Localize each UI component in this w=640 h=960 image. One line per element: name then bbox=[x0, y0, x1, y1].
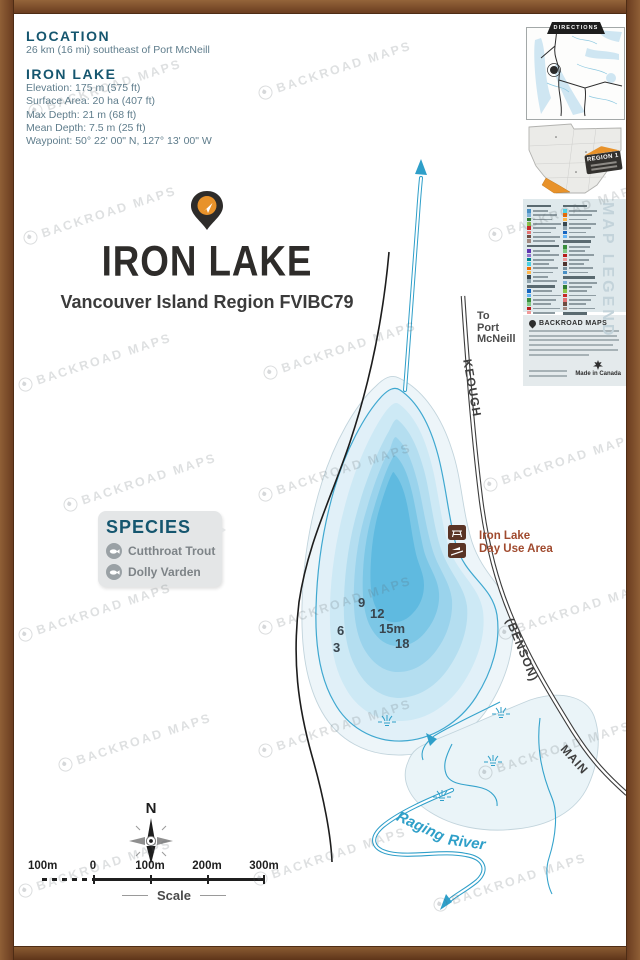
to-port-mcneill-label: To Port McNeill bbox=[477, 311, 516, 346]
day-use-markers bbox=[448, 525, 466, 558]
directions-inset-map bbox=[526, 27, 625, 120]
fine-print-line bbox=[529, 370, 567, 372]
stat-max-depth: Max Depth: 21 m (68 ft) bbox=[26, 109, 212, 122]
legend-text-line bbox=[533, 232, 551, 234]
legend-swatch bbox=[563, 298, 567, 302]
species-item: Cutthroat Trout bbox=[128, 544, 215, 558]
legend-swatch bbox=[563, 258, 567, 262]
to-port-line3: McNeill bbox=[477, 334, 516, 346]
legend-swatch bbox=[527, 298, 531, 302]
legend-col-left bbox=[527, 203, 561, 312]
legend-swatch bbox=[527, 249, 531, 253]
scale-dashed-segment bbox=[42, 878, 93, 881]
caption-dash bbox=[122, 895, 148, 896]
stat-mean-depth: Mean Depth: 7.5 m (25 ft) bbox=[26, 122, 212, 135]
scale-label: 100m bbox=[28, 860, 57, 872]
legend-text-line bbox=[569, 236, 595, 238]
legend-text-line bbox=[569, 290, 587, 292]
legend-text-line bbox=[533, 272, 553, 274]
legend-text-line bbox=[533, 295, 561, 297]
species-row: Cutthroat Trout bbox=[106, 543, 214, 559]
legend-text-line bbox=[569, 263, 584, 265]
legend-row bbox=[563, 235, 597, 239]
legend-swatch bbox=[563, 271, 567, 275]
legend-section-header bbox=[527, 205, 551, 208]
caption-dash bbox=[200, 895, 226, 896]
species-callout: SPECIES Cutthroat Trout Dolly Varden bbox=[98, 511, 222, 587]
scale-caption: Scale bbox=[157, 888, 191, 903]
fine-print-line bbox=[529, 339, 619, 341]
legend-text-line bbox=[533, 267, 558, 269]
copyright-lines bbox=[529, 367, 567, 377]
stat-elevation: Elevation: 175 m (575 ft) bbox=[26, 82, 212, 95]
species-item: Dolly Varden bbox=[128, 565, 201, 579]
made-in-canada: Made in Canada bbox=[575, 360, 621, 377]
legend-text-line bbox=[533, 210, 548, 212]
legend-text-line bbox=[569, 214, 592, 216]
scale-bar: 100m 0 100m 200m 300m Scale bbox=[24, 860, 284, 905]
legend-text-line bbox=[569, 303, 586, 305]
directions-banner: DIRECTIONS bbox=[547, 22, 605, 34]
legend-section-header bbox=[563, 205, 587, 208]
stat-surface-area: Surface Area: 20 ha (407 ft) bbox=[26, 95, 212, 108]
brand-name: BACKROAD MAPS bbox=[539, 320, 607, 327]
legend-text-line bbox=[533, 290, 552, 292]
legend-swatch bbox=[527, 213, 531, 217]
legend-text-line bbox=[533, 259, 554, 261]
legend-text-line bbox=[569, 232, 586, 234]
directions-map-art bbox=[527, 28, 624, 117]
legend-text-line bbox=[569, 272, 588, 274]
species-heading: SPECIES bbox=[106, 517, 214, 538]
brand-pin-icon bbox=[528, 319, 538, 329]
lake-subtitle: Vancouver Island Region FVIBC79 bbox=[57, 292, 357, 313]
legend-swatch bbox=[563, 262, 567, 266]
legend-text-line bbox=[533, 240, 555, 242]
legend-swatch bbox=[527, 226, 531, 230]
legend-swatch bbox=[527, 302, 531, 306]
depth-label-6: 6 bbox=[337, 623, 344, 638]
legend-swatch bbox=[527, 267, 531, 271]
depth-label-9: 9 bbox=[358, 595, 365, 610]
scale-tick bbox=[263, 875, 265, 884]
legend-swatch bbox=[563, 285, 567, 289]
legend-swatch bbox=[527, 235, 531, 239]
scale-tick bbox=[207, 875, 209, 884]
legend-text-line bbox=[533, 236, 560, 238]
legend-text-line bbox=[569, 250, 585, 252]
day-use-line2: Day Use Area bbox=[479, 543, 553, 556]
legend-swatch bbox=[527, 262, 531, 266]
legend-text-line bbox=[569, 254, 594, 256]
lake-heading: IRON LAKE bbox=[26, 66, 212, 82]
legend-swatch bbox=[527, 307, 531, 311]
scale-label: 100m bbox=[135, 860, 164, 872]
scale-caption-row: Scale bbox=[84, 888, 264, 903]
location-heading: LOCATION bbox=[26, 28, 212, 44]
legend-text-line bbox=[533, 299, 556, 301]
scale-solid-segment bbox=[93, 878, 264, 881]
legend-text-line bbox=[533, 263, 549, 265]
legend-text-line bbox=[569, 299, 591, 301]
legend-swatch bbox=[563, 249, 567, 253]
legend-text-line bbox=[533, 214, 557, 216]
legend-text-line bbox=[569, 210, 597, 212]
legend-swatch bbox=[527, 222, 531, 226]
legend-text-line bbox=[569, 259, 589, 261]
legend-swatch bbox=[527, 311, 531, 315]
legend-row bbox=[527, 279, 561, 283]
legend-text-line bbox=[569, 308, 595, 310]
legend-text-line bbox=[569, 295, 596, 297]
compass-rose bbox=[127, 817, 175, 865]
legend-text-line bbox=[569, 267, 593, 269]
legend-swatch bbox=[527, 289, 531, 293]
stat-waypoint: Waypoint: 50° 22' 00" N, 127° 13' 00" W bbox=[26, 135, 212, 148]
picnic-table-icon bbox=[448, 525, 466, 540]
scale-tick bbox=[93, 875, 95, 884]
legend-swatch bbox=[563, 294, 567, 298]
legend-swatch bbox=[527, 254, 531, 258]
day-use-label: Iron Lake Day Use Area bbox=[479, 530, 553, 556]
legend-text-line bbox=[569, 223, 596, 225]
legend-swatch bbox=[527, 218, 531, 222]
location-text: 26 km (16 mi) southeast of Port McNeill bbox=[26, 44, 212, 57]
fine-print-line bbox=[529, 349, 618, 351]
legend-swatch bbox=[563, 218, 567, 222]
legend-swatch bbox=[527, 209, 531, 213]
boat-launch-icon bbox=[448, 543, 466, 558]
depth-label-12: 12 bbox=[370, 606, 384, 621]
scale-label: 0 bbox=[90, 860, 96, 872]
legend-swatch bbox=[563, 222, 567, 226]
legend-section-header bbox=[527, 245, 559, 248]
legend-swatch bbox=[563, 231, 567, 235]
legend-swatch bbox=[527, 231, 531, 235]
legend-text-line bbox=[569, 246, 590, 248]
scale-tick bbox=[150, 875, 152, 884]
legend-text-line bbox=[533, 280, 557, 282]
legend-row bbox=[527, 239, 561, 243]
river-arrow bbox=[440, 894, 452, 910]
legend-col-right bbox=[563, 203, 597, 312]
legend-row bbox=[563, 306, 597, 310]
legend-text-line bbox=[569, 227, 591, 229]
depth-label-15m: 15m bbox=[379, 621, 405, 636]
legend-section-header bbox=[527, 285, 555, 288]
directions-label: DIRECTIONS bbox=[554, 25, 599, 31]
scale-label: 200m bbox=[192, 860, 221, 872]
outflow-creek-inner bbox=[405, 178, 421, 390]
depth-label-18: 18 bbox=[395, 636, 409, 651]
map-legend-title: MAP LEGEND bbox=[598, 202, 616, 310]
publisher-footer: Made in Canada bbox=[529, 360, 621, 377]
legend-text-line bbox=[569, 286, 592, 288]
compass-north-label: N bbox=[138, 800, 164, 817]
creek-arrow bbox=[415, 159, 427, 175]
legend-swatch bbox=[563, 213, 567, 217]
legend-swatch bbox=[563, 209, 567, 213]
title-block: IRON LAKE Vancouver Island Region FVIBC7… bbox=[57, 188, 357, 313]
to-port-line1: To bbox=[477, 311, 516, 323]
legend-text-line bbox=[533, 308, 560, 310]
fish-icon bbox=[106, 543, 122, 559]
legend-row bbox=[563, 270, 597, 274]
legend-swatch bbox=[527, 279, 531, 283]
legend-swatch bbox=[563, 289, 567, 293]
poster: LOCATION 26 km (16 mi) southeast of Port… bbox=[0, 0, 640, 960]
fine-print-line bbox=[529, 375, 567, 377]
legend-swatch bbox=[527, 258, 531, 262]
lake-title: IRON LAKE bbox=[69, 239, 345, 287]
depth-label-3: 3 bbox=[333, 640, 340, 655]
legend-swatch bbox=[563, 245, 567, 249]
legend-swatch bbox=[527, 275, 531, 279]
legend-swatch bbox=[563, 254, 567, 258]
legend-swatch bbox=[527, 294, 531, 298]
legend-swatch bbox=[563, 267, 567, 271]
legend-text-line bbox=[533, 303, 551, 305]
legend-text-line bbox=[533, 219, 552, 221]
legend-swatch bbox=[527, 239, 531, 243]
legend-swatch bbox=[563, 235, 567, 239]
species-row: Dolly Varden bbox=[106, 564, 214, 580]
brand-pin-icon bbox=[187, 188, 227, 236]
fine-print-line bbox=[529, 354, 589, 356]
scale-label: 300m bbox=[249, 860, 278, 872]
legend-swatch bbox=[563, 302, 567, 306]
fine-print-line bbox=[529, 344, 613, 346]
legend-text-line bbox=[569, 219, 587, 221]
legend-text-line bbox=[569, 282, 597, 284]
legend-swatch bbox=[527, 271, 531, 275]
legend-text-line bbox=[533, 223, 561, 225]
made-in-canada-label: Made in Canada bbox=[575, 371, 621, 377]
day-use-line1: Iron Lake bbox=[479, 530, 553, 543]
info-panel: LOCATION 26 km (16 mi) southeast of Port… bbox=[26, 28, 212, 148]
legend-section-header bbox=[563, 240, 591, 243]
legend-swatch bbox=[563, 307, 567, 311]
maple-leaf-icon bbox=[593, 360, 603, 370]
fish-icon bbox=[106, 564, 122, 580]
legend-swatch bbox=[563, 226, 567, 230]
legend-text-line bbox=[533, 276, 548, 278]
legend-section-header bbox=[563, 276, 595, 279]
legend-text-line bbox=[533, 250, 550, 252]
legend-swatch bbox=[563, 281, 567, 285]
legend-text-line bbox=[533, 312, 555, 314]
legend-text-line bbox=[533, 254, 559, 256]
legend-text-line bbox=[533, 227, 556, 229]
region-badge: REGION 1 bbox=[583, 144, 622, 175]
